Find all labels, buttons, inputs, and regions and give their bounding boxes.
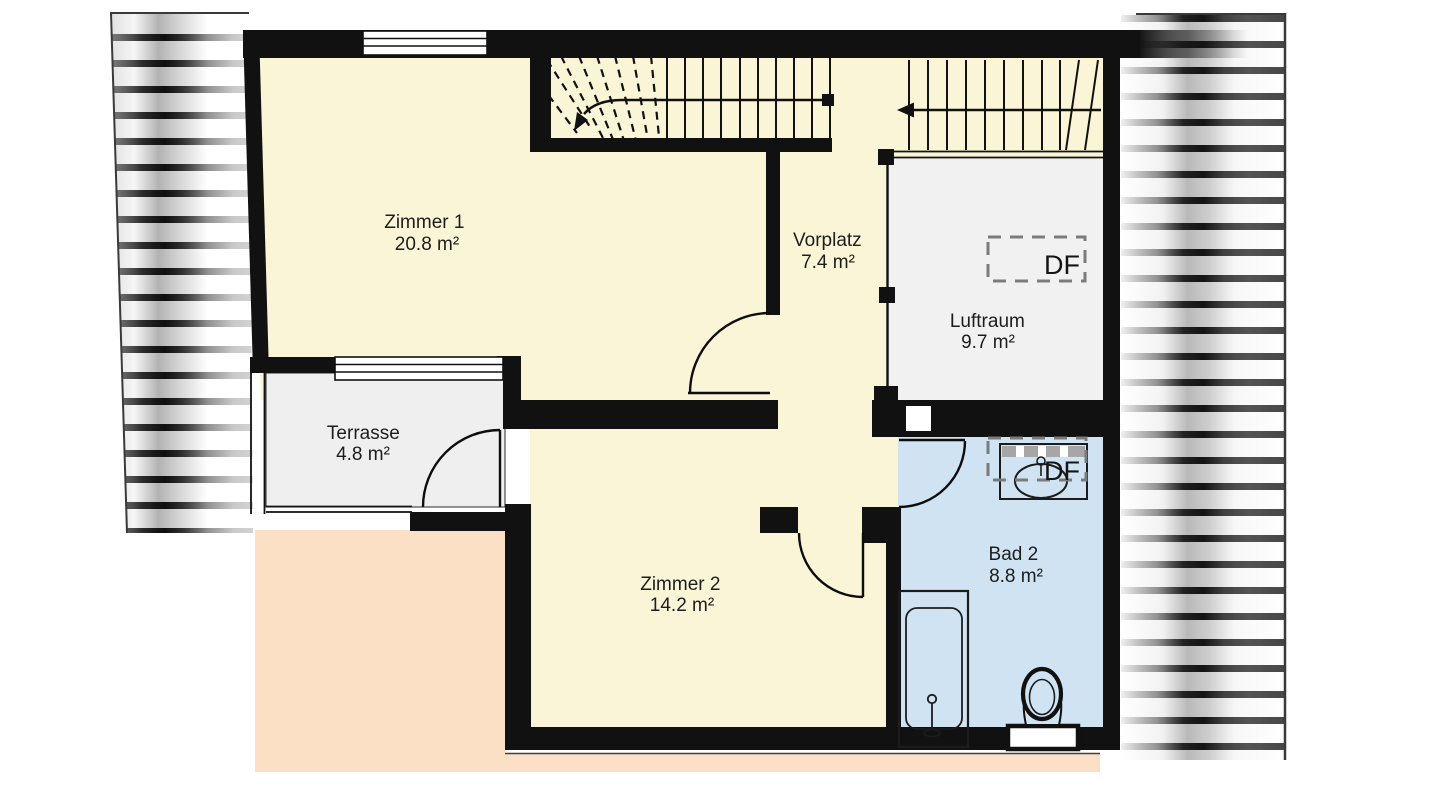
wall-terrace-south-chunk xyxy=(410,512,510,531)
floor-plan-drawing: DF DF Zimmer 1 20.8 m² Vorplatz 7.4 m² L… xyxy=(0,0,1440,810)
roof-window-label: DF xyxy=(1044,456,1080,486)
toilet-cistern xyxy=(1008,726,1078,749)
rail-post xyxy=(879,287,895,303)
exterior-wall-top-fade xyxy=(1138,30,1248,58)
wall-terrace-north xyxy=(250,357,335,373)
floor-plan-page: DF DF Zimmer 1 20.8 m² Vorplatz 7.4 m² L… xyxy=(0,0,1440,810)
shaft-opening xyxy=(906,406,931,431)
room-label-bad2: Bad 2 8.8 m² xyxy=(989,544,1044,587)
roof-hatch-left xyxy=(104,10,256,538)
room-label-zimmer2: Zimmer 2 14.2 m² xyxy=(640,574,726,616)
roof-hatch-right xyxy=(1121,13,1288,760)
room-label-zimmer1: Zimmer 1 20.8 m² xyxy=(384,212,470,255)
window-terrace xyxy=(335,357,503,380)
wall-zimmer2-north-stub xyxy=(760,507,798,533)
toilet-bowl xyxy=(1023,669,1061,719)
stair-walk-line-node xyxy=(822,94,834,106)
rail-post xyxy=(878,149,894,165)
roof-window-label: DF xyxy=(1044,250,1080,280)
wall-zimmer1-south xyxy=(503,400,778,429)
exterior-wall-east xyxy=(1103,36,1120,750)
wall-stair-side xyxy=(530,53,551,152)
rail-post xyxy=(874,386,898,402)
wall-stair-bottom xyxy=(530,138,832,152)
wall-zimmer1-vorplatz xyxy=(766,143,780,315)
wall-zimmer2-west xyxy=(505,504,531,750)
window-zimmer1-north xyxy=(363,31,487,55)
